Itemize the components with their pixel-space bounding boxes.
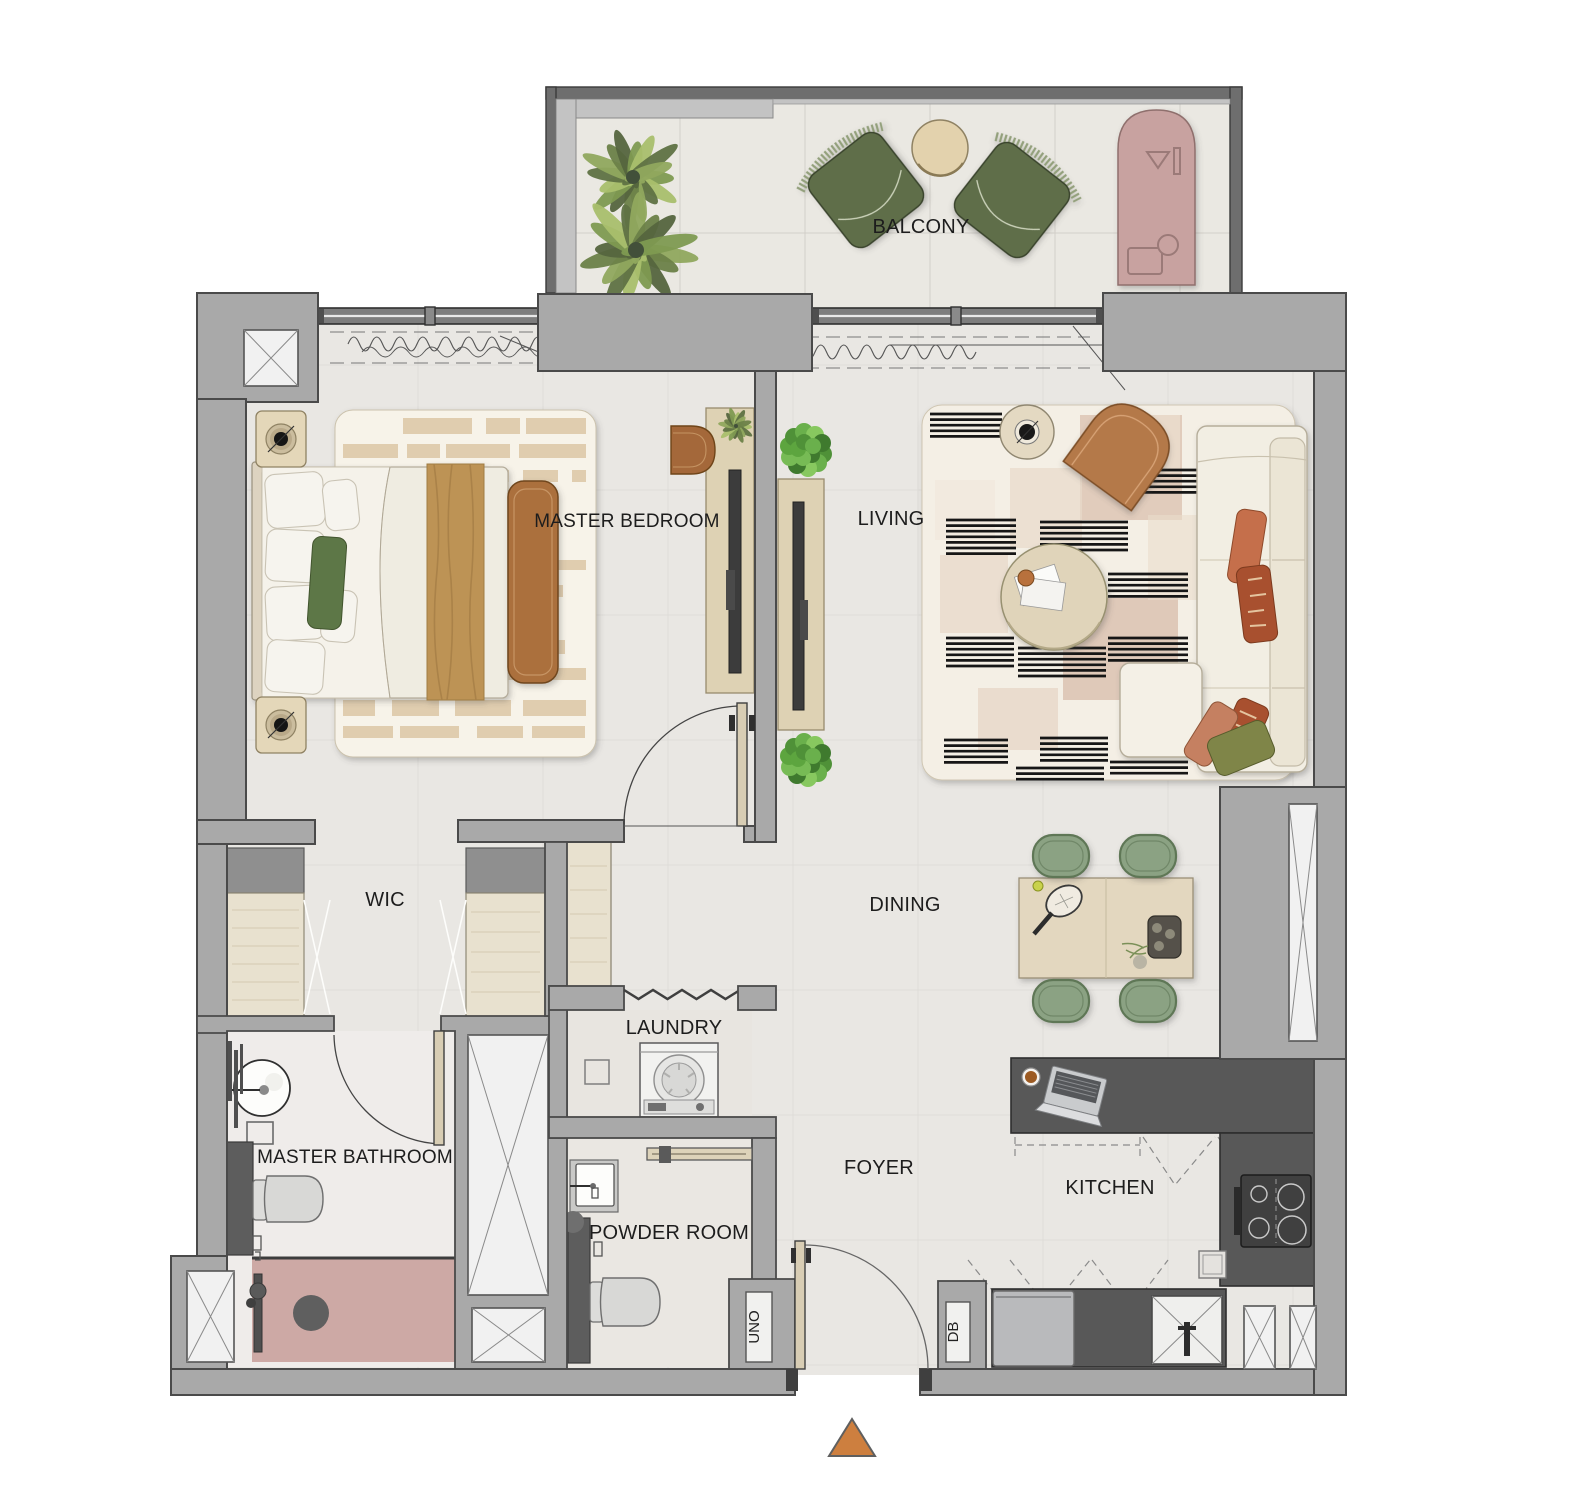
svg-text:MASTER BATHROOM: MASTER BATHROOM bbox=[257, 1147, 453, 1168]
svg-text:WIC: WIC bbox=[365, 889, 404, 911]
svg-text:LIVING: LIVING bbox=[858, 508, 925, 530]
svg-text:MASTER BEDROOM: MASTER BEDROOM bbox=[534, 511, 719, 532]
svg-text:DB: DB bbox=[945, 1322, 962, 1343]
svg-text:POWDER ROOM: POWDER ROOM bbox=[589, 1222, 749, 1244]
svg-text:KITCHEN: KITCHEN bbox=[1065, 1177, 1154, 1199]
svg-text:DINING: DINING bbox=[869, 894, 940, 916]
svg-text:LAUNDRY: LAUNDRY bbox=[626, 1017, 723, 1039]
svg-text:BALCONY: BALCONY bbox=[873, 216, 970, 238]
svg-text:UNO: UNO bbox=[746, 1310, 763, 1343]
svg-text:FOYER: FOYER bbox=[844, 1157, 914, 1179]
